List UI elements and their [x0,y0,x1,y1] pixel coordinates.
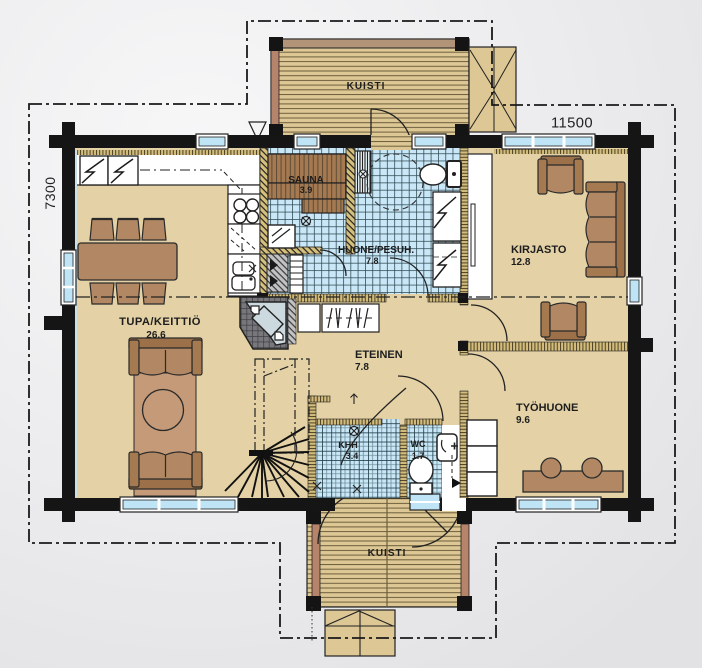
svg-text:TUPA/KEITTIÖ: TUPA/KEITTIÖ [119,315,201,328]
svg-text:3.4: 3.4 [346,451,359,461]
svg-text:HUONE/PESUH.: HUONE/PESUH. [338,245,414,256]
svg-text:ETEINEN: ETEINEN [355,349,403,361]
svg-text:7300: 7300 [42,176,58,209]
svg-text:7.8: 7.8 [355,362,369,373]
svg-text:1.7: 1.7 [412,451,425,461]
svg-text:WC: WC [411,439,426,449]
svg-text:11500: 11500 [551,116,593,132]
svg-text:KIRJASTO: KIRJASTO [511,244,567,256]
svg-text:TYÖHUONE: TYÖHUONE [516,401,578,414]
svg-text:26.6: 26.6 [146,330,166,341]
svg-text:KUISTI: KUISTI [368,548,407,559]
svg-text:3.9: 3.9 [300,185,313,195]
svg-text:12.8: 12.8 [511,257,531,268]
svg-text:KHH: KHH [338,440,358,450]
svg-text:7.8: 7.8 [366,256,379,266]
svg-text:9.6: 9.6 [516,415,530,426]
svg-text:KUISTI: KUISTI [347,81,386,92]
